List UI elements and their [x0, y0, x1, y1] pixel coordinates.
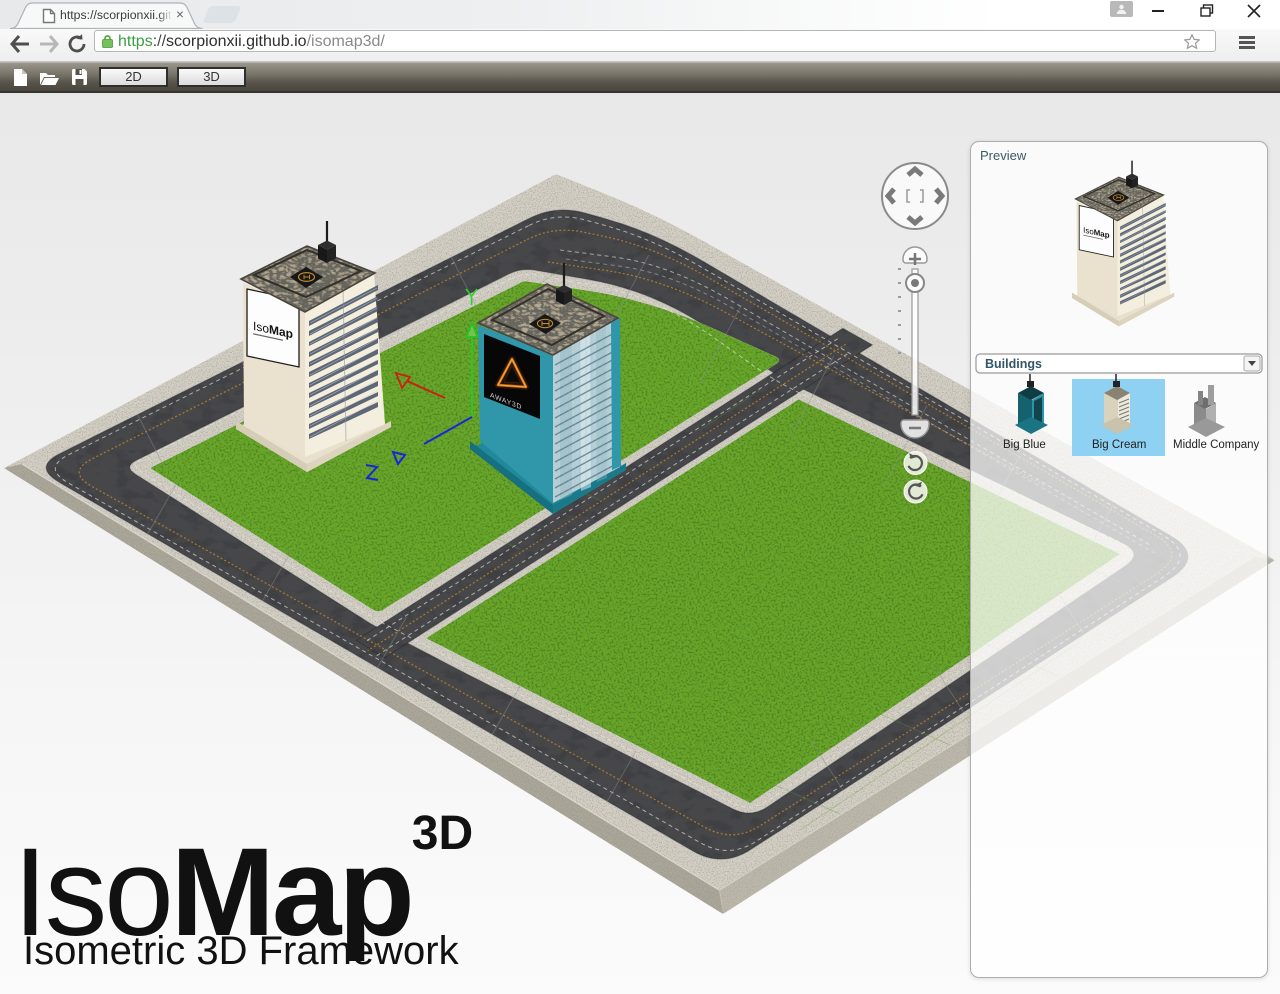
svg-text:Big Blue: Big Blue	[1003, 439, 1046, 451]
svg-text:Buildings: Buildings	[985, 357, 1042, 371]
svg-text:Big Cream: Big Cream	[1092, 439, 1146, 451]
svg-text:Middle Company: Middle Company	[1173, 439, 1260, 451]
